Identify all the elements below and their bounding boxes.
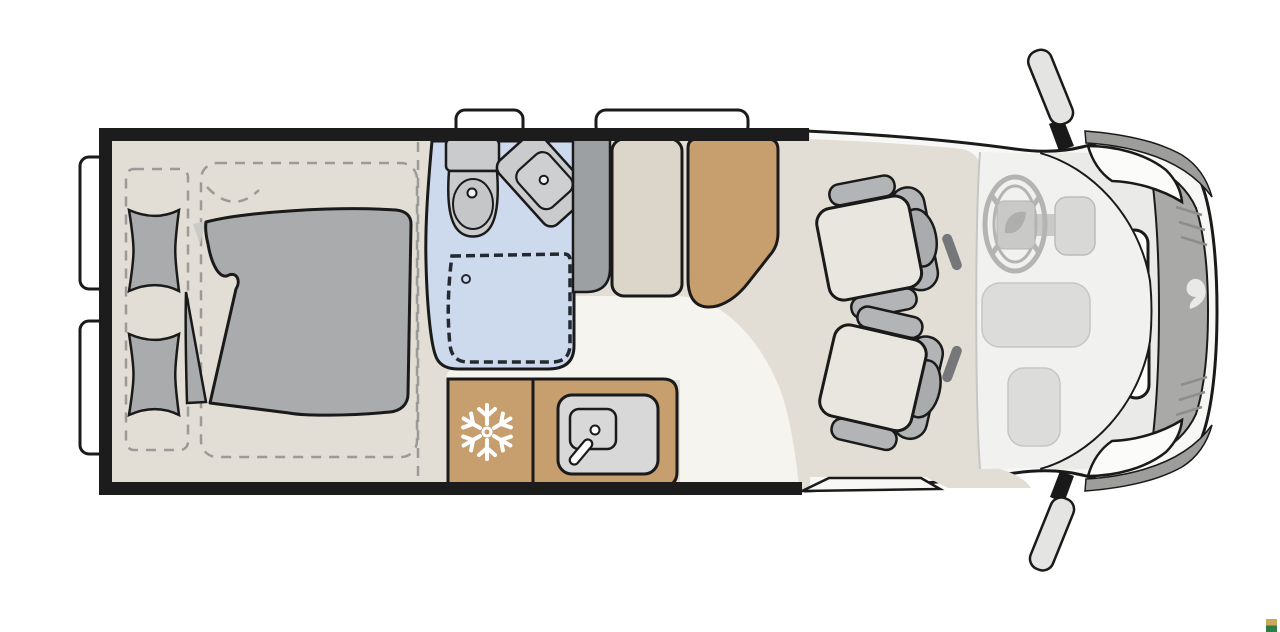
mirror-bottom-blade xyxy=(1027,494,1078,573)
corner-marker-green xyxy=(1266,626,1277,632)
bathroom xyxy=(426,128,593,369)
floorplan-canvas xyxy=(0,0,1280,632)
corner-marker-gold xyxy=(1266,619,1277,626)
driver-cushion xyxy=(814,193,924,302)
sink-drain xyxy=(591,426,600,435)
toilet-flush xyxy=(468,189,477,198)
center-console xyxy=(982,283,1090,347)
pillow-1 xyxy=(129,210,179,291)
dash-pod xyxy=(1055,197,1095,255)
pillow-2 xyxy=(129,334,179,415)
corner-marker xyxy=(1266,619,1277,632)
mirror-top-blade xyxy=(1025,46,1076,127)
wardrobe xyxy=(573,139,610,292)
toilet-tank xyxy=(446,139,499,171)
mirror-top xyxy=(1025,46,1076,151)
habitation-area xyxy=(104,128,810,489)
floorplan-page xyxy=(0,0,1280,632)
glovebox-console xyxy=(1008,368,1060,446)
van-cab xyxy=(806,131,1217,491)
toilet xyxy=(446,139,499,237)
duvet xyxy=(206,209,411,415)
entry-step xyxy=(802,478,940,491)
mirror-bottom xyxy=(1027,471,1078,574)
passenger-cushion xyxy=(817,322,930,434)
bench-seat xyxy=(612,139,682,296)
toilet-seat xyxy=(453,179,493,229)
kitchen xyxy=(448,379,677,486)
